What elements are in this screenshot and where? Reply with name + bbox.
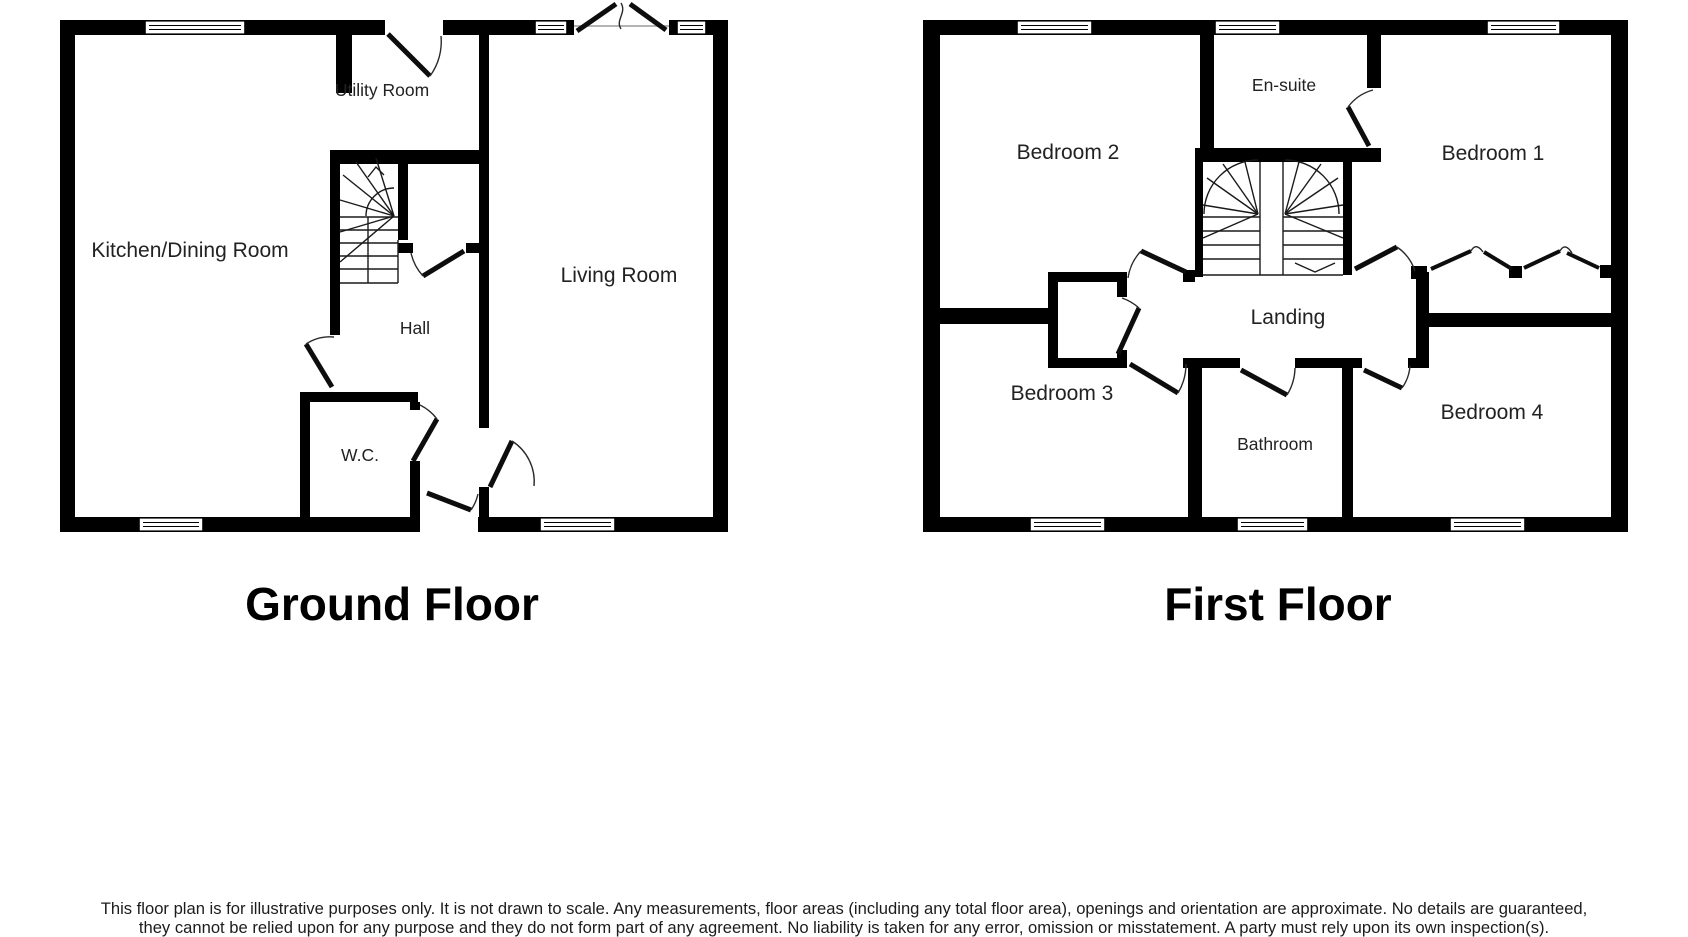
window-kitchen-bottom <box>139 518 203 531</box>
stairs-right-wall <box>398 158 408 240</box>
bedroom3-door <box>1130 364 1186 393</box>
french-doors <box>574 3 669 31</box>
room-label-kitchen-dining: Kitchen/Dining Room <box>91 239 288 262</box>
room-label-bedroom1: Bedroom 1 <box>1442 142 1545 165</box>
first-stairs-winders-left <box>1203 160 1258 238</box>
stairs-right-wall-ff <box>1343 162 1352 275</box>
first-outer-walls <box>923 20 1628 532</box>
disclaimer-line-2: they cannot be relied upon for any purpo… <box>139 918 1549 937</box>
bedroom1-wardrobe-bifolds <box>1431 247 1599 269</box>
cupboard-top-wall <box>1048 272 1127 282</box>
ground-floor-title: Ground Floor <box>245 578 539 630</box>
window-bedroom2-top <box>1017 21 1092 34</box>
first-floor-plan: Bedroom 2 En-suite Bedroom 1 Landing Bed… <box>923 20 1628 532</box>
room-label-bedroom2: Bedroom 2 <box>1017 141 1120 164</box>
window-ensuite-top <box>1215 21 1280 34</box>
front-door <box>427 493 478 510</box>
disclaimer: This floor plan is for illustrative purp… <box>101 899 1588 937</box>
ensuite-door <box>1348 90 1373 146</box>
room-label-bedroom4: Bedroom 4 <box>1441 401 1544 424</box>
french-door-centre-squiggle <box>619 3 622 29</box>
stairs-left-wall-ff <box>1195 162 1203 277</box>
ground-inner-walls <box>300 35 489 517</box>
cupboard-bottom-wall <box>1048 358 1127 368</box>
window-kitchen-top <box>145 21 245 34</box>
first-doors <box>1118 90 1415 395</box>
bathroom-left-wall <box>1188 368 1202 517</box>
bedroom2-door <box>1128 251 1186 278</box>
wc-right-wall <box>410 461 420 517</box>
cupboard-door <box>1118 298 1139 354</box>
inner-hall-door <box>411 251 464 276</box>
first-stairs-winders-right <box>1285 160 1343 238</box>
ground-doors <box>306 34 534 510</box>
bifold-squiggle-2 <box>1560 247 1572 253</box>
bedroom4-door <box>1364 366 1410 388</box>
disclaimer-line-1: This floor plan is for illustrative purp… <box>101 899 1588 918</box>
first-stairs-arrow <box>1295 263 1335 272</box>
bathroom-door <box>1241 368 1295 395</box>
room-label-ensuite: En-suite <box>1252 75 1316 95</box>
kitchen-hall-door <box>306 337 334 387</box>
window-bathroom-bottom <box>1237 518 1308 531</box>
room-label-living: Living Room <box>561 264 678 287</box>
hall-living-divider <box>479 35 489 428</box>
room-label-bedroom3: Bedroom 3 <box>1011 382 1114 405</box>
window-living-bottom <box>540 518 615 531</box>
stairs-left-wall <box>330 164 340 335</box>
room-label-utility: Utility Room <box>335 80 429 100</box>
bedroom2-3-divider <box>940 308 1048 324</box>
window-bedroom3-bottom <box>1030 518 1105 531</box>
wc-left-wall <box>300 402 310 517</box>
window-living-top-left <box>535 21 567 34</box>
first-stairs <box>1203 160 1343 275</box>
utility-back-door <box>388 34 441 76</box>
window-bedroom1-top <box>1487 21 1560 34</box>
ground-stairs <box>340 158 398 283</box>
living-room-door <box>490 441 534 487</box>
ensuite-left-wall <box>1200 35 1214 148</box>
ensuite-right-stub <box>1367 35 1381 88</box>
ground-stairs-winders <box>340 158 394 262</box>
room-label-hall: Hall <box>400 318 430 338</box>
wc-top-wall <box>300 392 418 402</box>
bifold-squiggle-1 <box>1471 247 1483 252</box>
cupboard-left-wall <box>1048 282 1058 358</box>
room-label-bathroom: Bathroom <box>1237 434 1313 454</box>
room-label-landing: Landing <box>1251 306 1326 329</box>
floorplan-canvas: Kitchen/Dining Room Utility Room Living … <box>0 0 1688 937</box>
window-living-top-right <box>677 21 706 34</box>
bedroom1-door <box>1355 247 1415 271</box>
room-label-wc: W.C. <box>341 445 379 465</box>
bedroom4-top-wall <box>1427 313 1628 327</box>
first-floor-title: First Floor <box>1164 578 1392 630</box>
ground-floor-plan: Kitchen/Dining Room Utility Room Living … <box>60 3 728 532</box>
window-bedroom4-bottom <box>1450 518 1525 531</box>
bathroom-right-wall <box>1342 368 1353 517</box>
wc-door <box>413 405 437 461</box>
stairs-top-wall <box>330 150 489 164</box>
